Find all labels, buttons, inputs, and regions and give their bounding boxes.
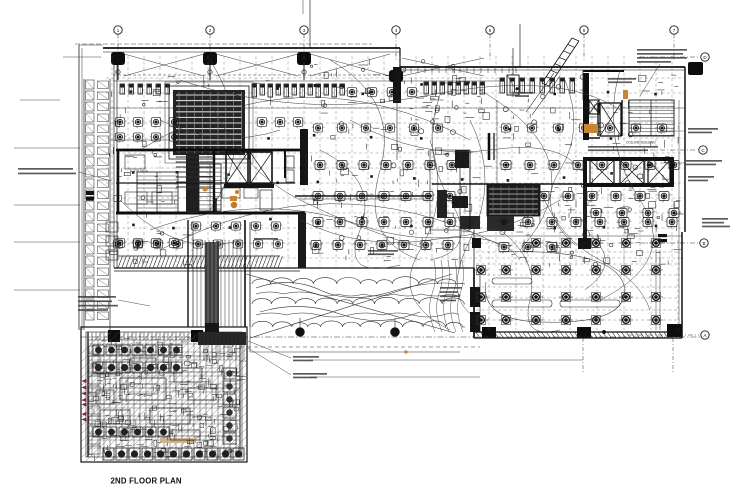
svg-text:A: A [703, 333, 706, 338]
svg-text:2ND FLOOR PLAN: 2ND FLOOR PLAN [111, 477, 182, 486]
svg-text:E. COLLEGE: E. COLLEGE [130, 169, 148, 173]
svg-text:B: B [702, 241, 705, 246]
svg-text:COLLINS BUILDING: COLLINS BUILDING [626, 141, 656, 145]
